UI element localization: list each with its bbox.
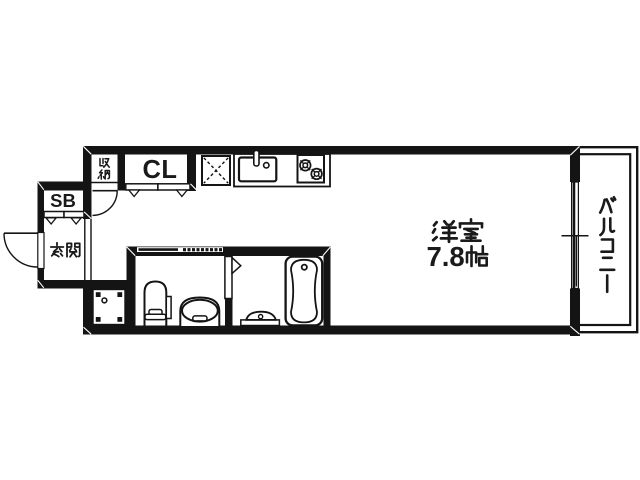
svg-text:7.8: 7.8 <box>427 241 465 272</box>
svg-text:SB: SB <box>50 190 76 211</box>
svg-text:CL: CL <box>143 156 178 184</box>
